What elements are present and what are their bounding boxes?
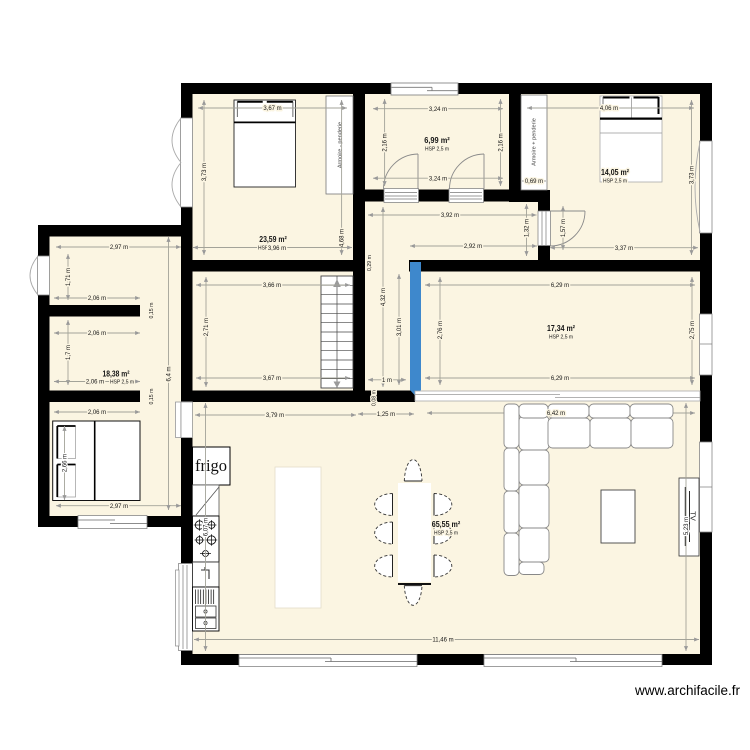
- svg-text:HSP 2,5 m: HSP 2,5 m: [434, 531, 458, 537]
- svg-text:6,29 m: 6,29 m: [551, 283, 569, 289]
- svg-text:3,92 m: 3,92 m: [441, 213, 459, 219]
- svg-text:6,42 m: 6,42 m: [547, 411, 565, 417]
- svg-text:Armoire - penderie: Armoire - penderie: [338, 122, 344, 168]
- svg-text:3,96 m: 3,96 m: [268, 246, 286, 252]
- svg-text:1,7 m: 1,7 m: [66, 345, 72, 360]
- svg-text:2,06 m: 2,06 m: [86, 380, 104, 386]
- svg-text:3,24 m: 3,24 m: [429, 107, 447, 113]
- svg-text:2,16 m: 2,16 m: [499, 133, 505, 151]
- svg-text:2,06 m: 2,06 m: [88, 331, 106, 337]
- svg-text:6,4 m: 6,4 m: [167, 366, 173, 381]
- svg-text:23,59 m²: 23,59 m²: [259, 235, 287, 244]
- svg-text:3,01 m: 3,01 m: [397, 318, 403, 336]
- svg-text:5,23 m: 5,23 m: [684, 517, 690, 535]
- svg-text:www.archifacile.fr: www.archifacile.fr: [634, 683, 741, 698]
- svg-text:2,76 m: 2,76 m: [438, 321, 444, 339]
- svg-text:HSP 2,5 m: HSP 2,5 m: [110, 380, 134, 386]
- svg-text:frigo: frigo: [195, 456, 227, 475]
- svg-text:2,71 m: 2,71 m: [204, 318, 210, 336]
- svg-text:2,97 m: 2,97 m: [110, 504, 128, 510]
- svg-text:3,37 m: 3,37 m: [615, 246, 633, 252]
- svg-text:2,06 m: 2,06 m: [88, 296, 106, 302]
- svg-text:HSP 2,5 m: HSP 2,5 m: [425, 147, 449, 153]
- svg-text:0,69 m: 0,69 m: [525, 179, 543, 185]
- svg-text:0,29 m: 0,29 m: [367, 255, 373, 271]
- svg-text:0,08 m: 0,08 m: [372, 390, 378, 406]
- svg-text:4,06 m: 4,06 m: [600, 106, 618, 112]
- svg-text:2,75 m: 2,75 m: [690, 321, 696, 339]
- svg-text:1,25 m: 1,25 m: [377, 412, 395, 418]
- svg-text:6,99 m²: 6,99 m²: [424, 136, 450, 145]
- svg-text:4,32 m: 4,32 m: [381, 288, 387, 306]
- svg-text:4,68 m: 4,68 m: [340, 229, 346, 247]
- svg-text:65,55 m²: 65,55 m²: [432, 520, 461, 529]
- svg-text:3,73 m: 3,73 m: [690, 166, 696, 184]
- svg-text:2,66 m: 2,66 m: [63, 454, 69, 472]
- svg-text:18,38 m²: 18,38 m²: [103, 370, 130, 379]
- svg-text:2,16 m: 2,16 m: [383, 133, 389, 151]
- svg-text:3,24 m: 3,24 m: [429, 176, 447, 182]
- svg-text:1 m: 1 m: [382, 378, 392, 384]
- svg-text:6,07 m: 6,07 m: [204, 518, 210, 536]
- svg-text:3,67 m: 3,67 m: [263, 106, 281, 112]
- svg-text:2,06 m: 2,06 m: [88, 410, 106, 416]
- svg-text:2,97 m: 2,97 m: [110, 245, 128, 251]
- svg-text:14,05 m²: 14,05 m²: [601, 168, 629, 177]
- svg-text:17,34 m²: 17,34 m²: [547, 324, 575, 333]
- svg-text:0,15 m: 0,15 m: [149, 389, 155, 405]
- svg-text:1,57 m: 1,57 m: [561, 219, 567, 237]
- svg-text:0,15 m: 0,15 m: [149, 303, 155, 319]
- svg-text:6,29 m: 6,29 m: [551, 376, 569, 382]
- svg-text:Armoire + penderie: Armoire + penderie: [532, 118, 538, 166]
- svg-text:3,73 m: 3,73 m: [202, 163, 208, 181]
- svg-text:1,32 m: 1,32 m: [525, 219, 531, 237]
- svg-text:3,66 m: 3,66 m: [263, 283, 281, 289]
- svg-text:3,67 m: 3,67 m: [263, 376, 281, 382]
- svg-text:2,92 m: 2,92 m: [464, 244, 482, 250]
- svg-text:HSP 2,5 m: HSP 2,5 m: [549, 335, 573, 341]
- svg-text:HSP 2,5 m: HSP 2,5 m: [603, 179, 627, 185]
- svg-text:1,71 m: 1,71 m: [66, 268, 72, 286]
- svg-text:3,79 m: 3,79 m: [266, 413, 284, 419]
- svg-text:11,46 m: 11,46 m: [432, 638, 453, 644]
